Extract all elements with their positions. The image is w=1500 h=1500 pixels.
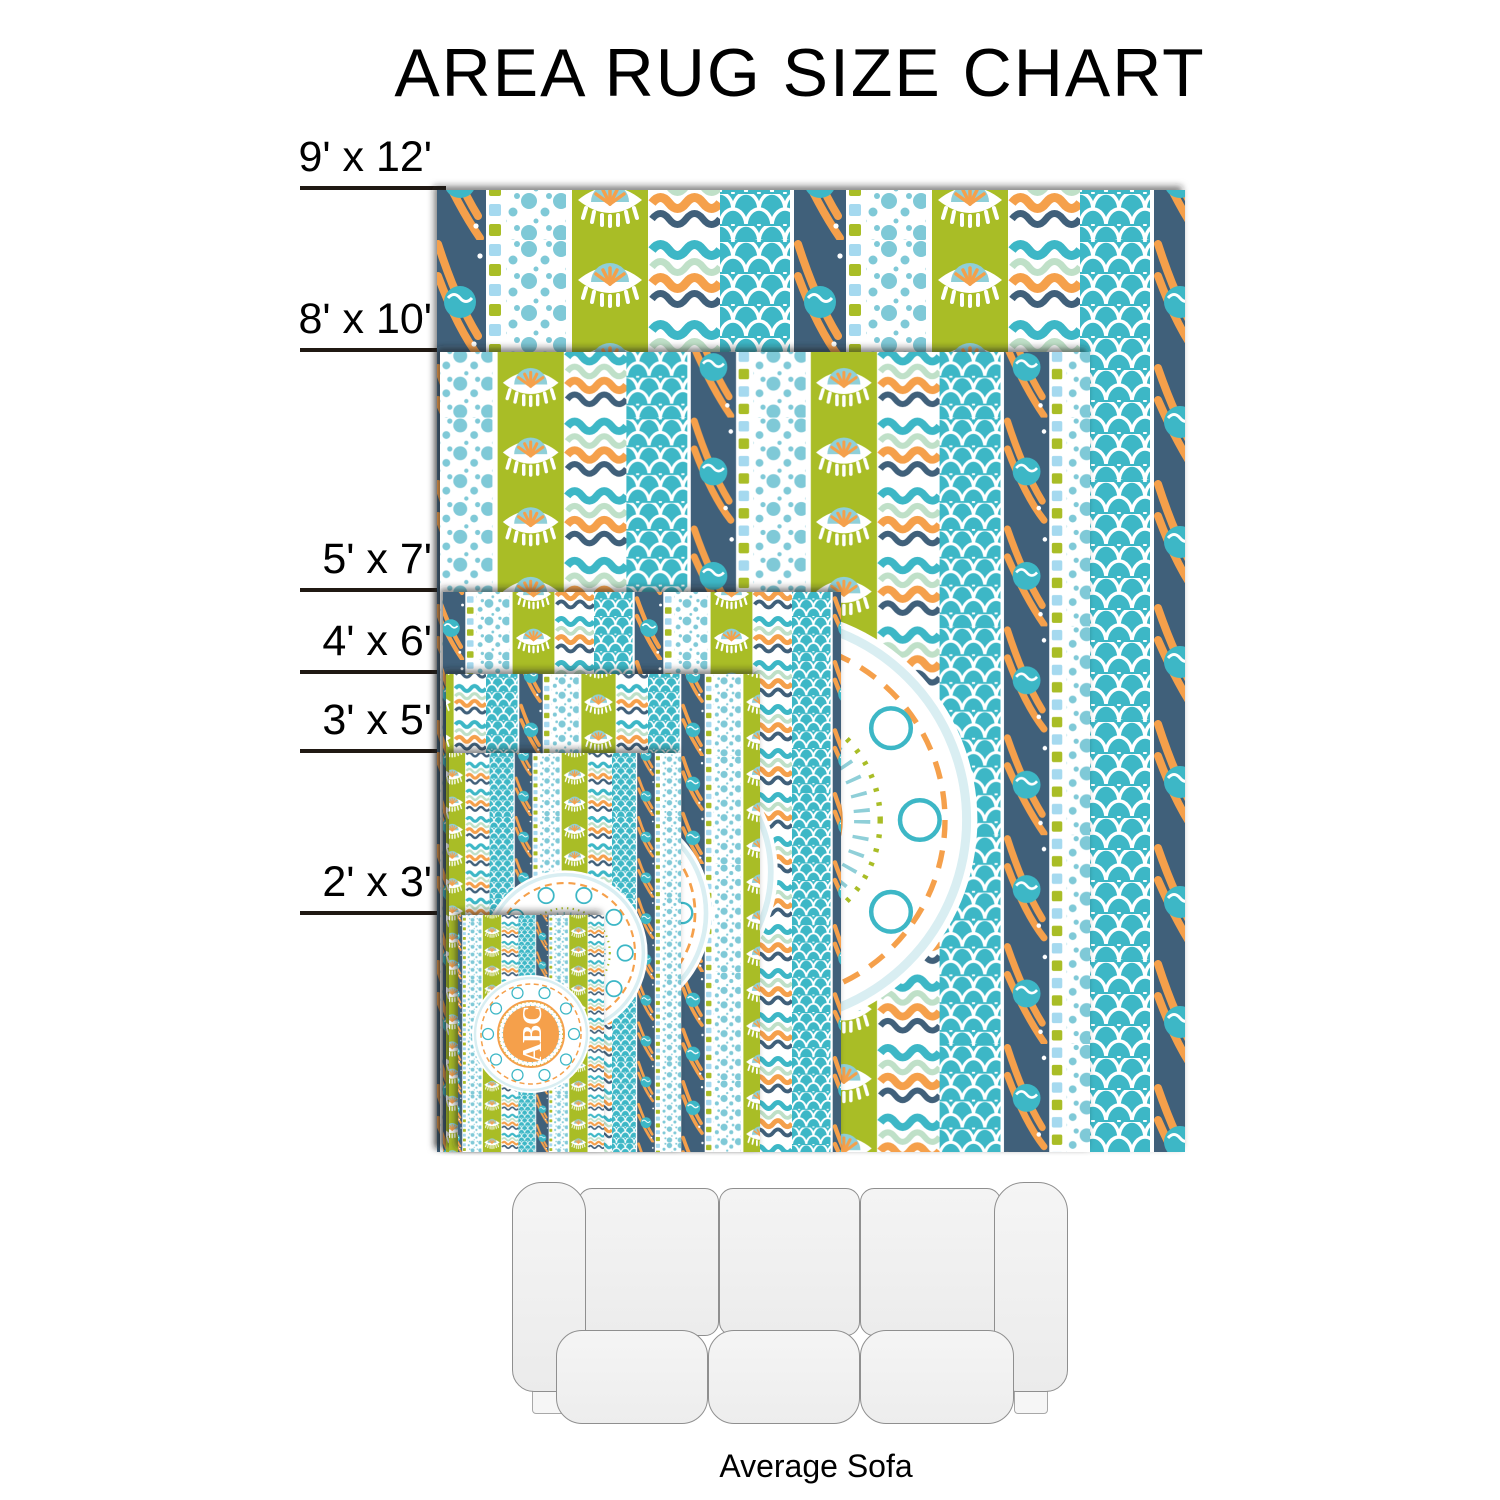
sofa-back-cushion-1 (578, 1188, 719, 1336)
sofa-illustration (512, 1182, 1068, 1424)
sofa-seat-cushion-3 (860, 1330, 1014, 1424)
sofa-back-cushion-2 (719, 1188, 860, 1336)
sofa-seat-cushion-2 (708, 1330, 860, 1424)
monogram-text: ABC (517, 1005, 547, 1062)
sofa-label: Average Sofa (516, 1448, 1116, 1485)
sofa-seat-cushion-1 (556, 1330, 708, 1424)
monogram-medallion: ABC (498, 1001, 564, 1067)
rug-size-chart-page: AREA RUG SIZE CHART 9' x 12' 8' x 10' 5'… (0, 0, 1500, 1500)
rug-2x3: ABC (458, 915, 604, 1152)
sofa-back-cushion-3 (860, 1188, 1001, 1336)
